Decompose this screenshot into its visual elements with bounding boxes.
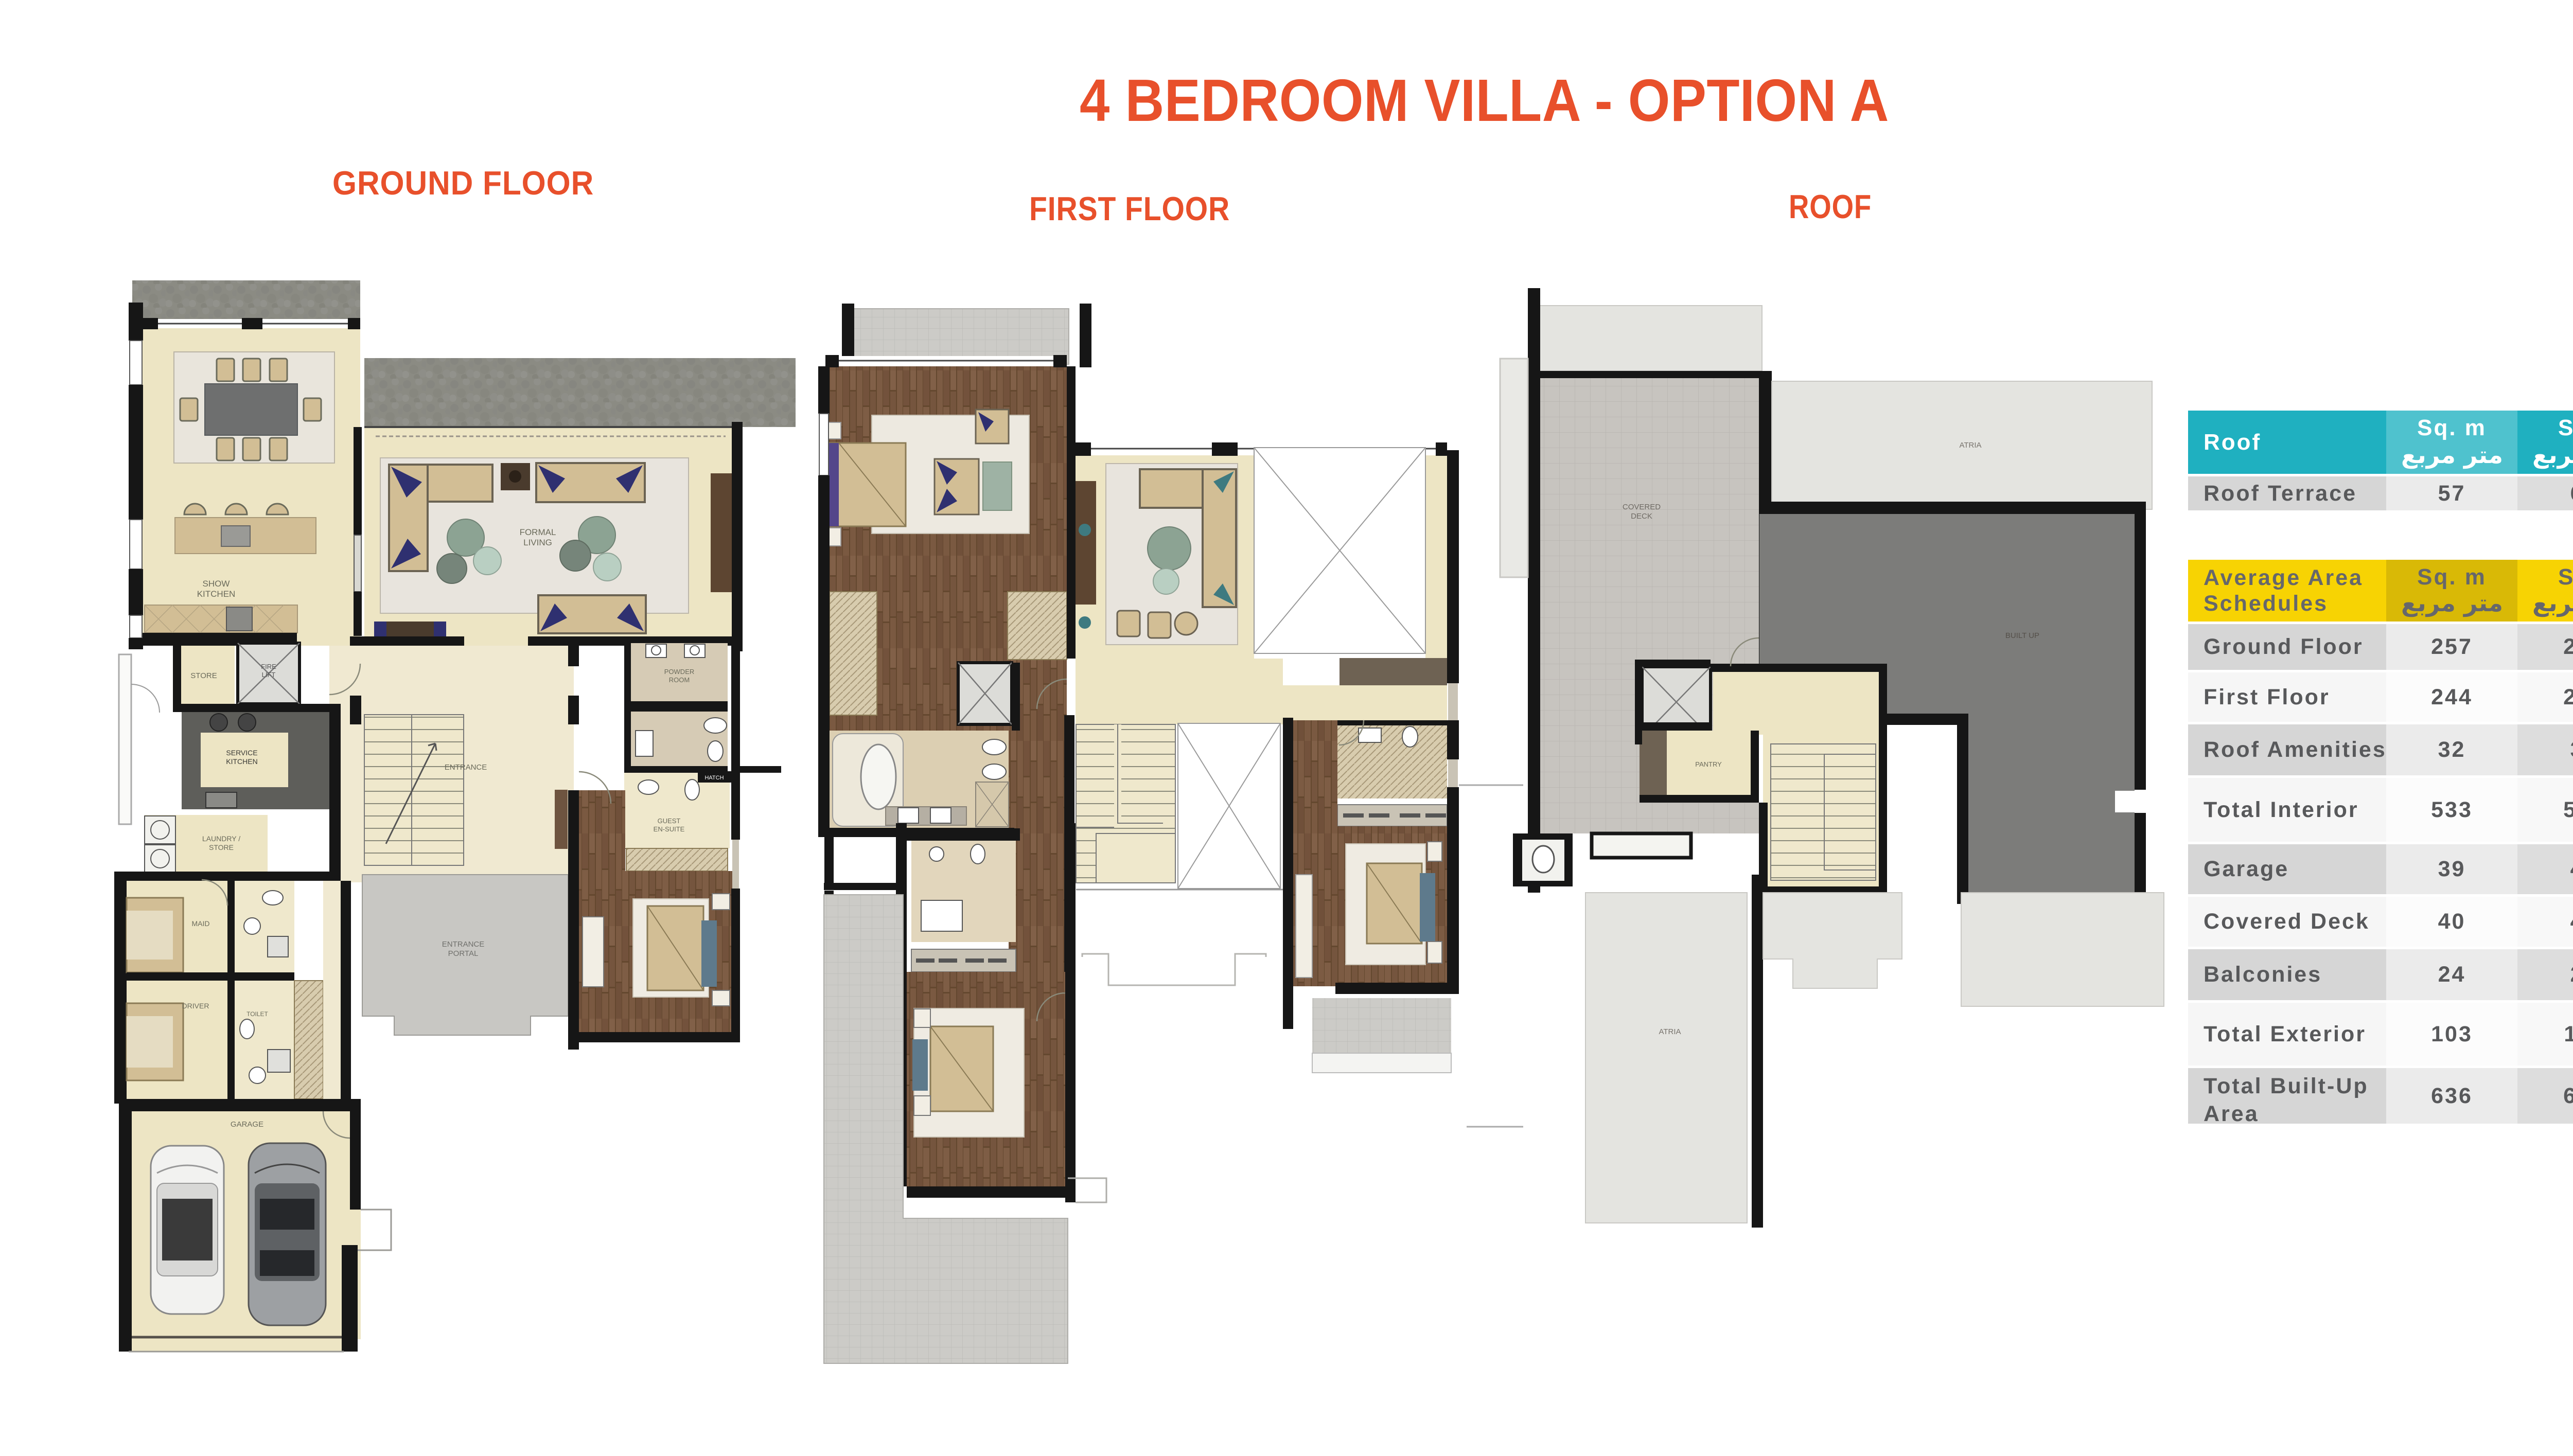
svg-text:SHOW: SHOW [203, 579, 230, 589]
svg-text:KITCHEN: KITCHEN [226, 757, 257, 766]
svg-text:TOILET: TOILET [246, 1010, 268, 1018]
svg-text:HATCH: HATCH [704, 775, 724, 781]
svg-text:PANTRY: PANTRY [1695, 760, 1722, 768]
svg-text:MAID: MAID [192, 919, 210, 928]
svg-text:SERVICE: SERVICE [226, 749, 257, 757]
svg-text:FORMAL: FORMAL [520, 527, 556, 537]
svg-text:ENTRANCE: ENTRANCE [445, 763, 487, 772]
svg-text:DECK: DECK [1631, 512, 1652, 521]
svg-text:KITCHEN: KITCHEN [197, 589, 236, 599]
svg-text:ROOM: ROOM [669, 676, 690, 684]
svg-text:ENTRANCE: ENTRANCE [442, 940, 485, 949]
svg-text:ATRIA: ATRIA [1659, 1027, 1681, 1036]
svg-text:STORE: STORE [190, 671, 217, 680]
svg-text:PORTAL: PORTAL [448, 949, 479, 958]
svg-text:GARAGE: GARAGE [231, 1120, 263, 1129]
svg-text:BUILT UP: BUILT UP [2005, 631, 2039, 640]
svg-text:LIFT: LIFT [262, 671, 276, 679]
svg-text:LAUNDRY /: LAUNDRY / [202, 834, 240, 843]
svg-text:LIVING: LIVING [523, 538, 552, 547]
svg-text:POWDER: POWDER [664, 668, 695, 676]
svg-text:COVERED: COVERED [1623, 503, 1661, 511]
svg-text:STORE: STORE [209, 843, 234, 851]
svg-text:EN-SUITE: EN-SUITE [654, 825, 685, 833]
svg-text:DRIVER: DRIVER [182, 1002, 209, 1010]
svg-text:FIRE: FIRE [261, 663, 276, 670]
svg-text:ATRIA: ATRIA [1959, 441, 1981, 450]
svg-text:GUEST: GUEST [658, 817, 681, 825]
